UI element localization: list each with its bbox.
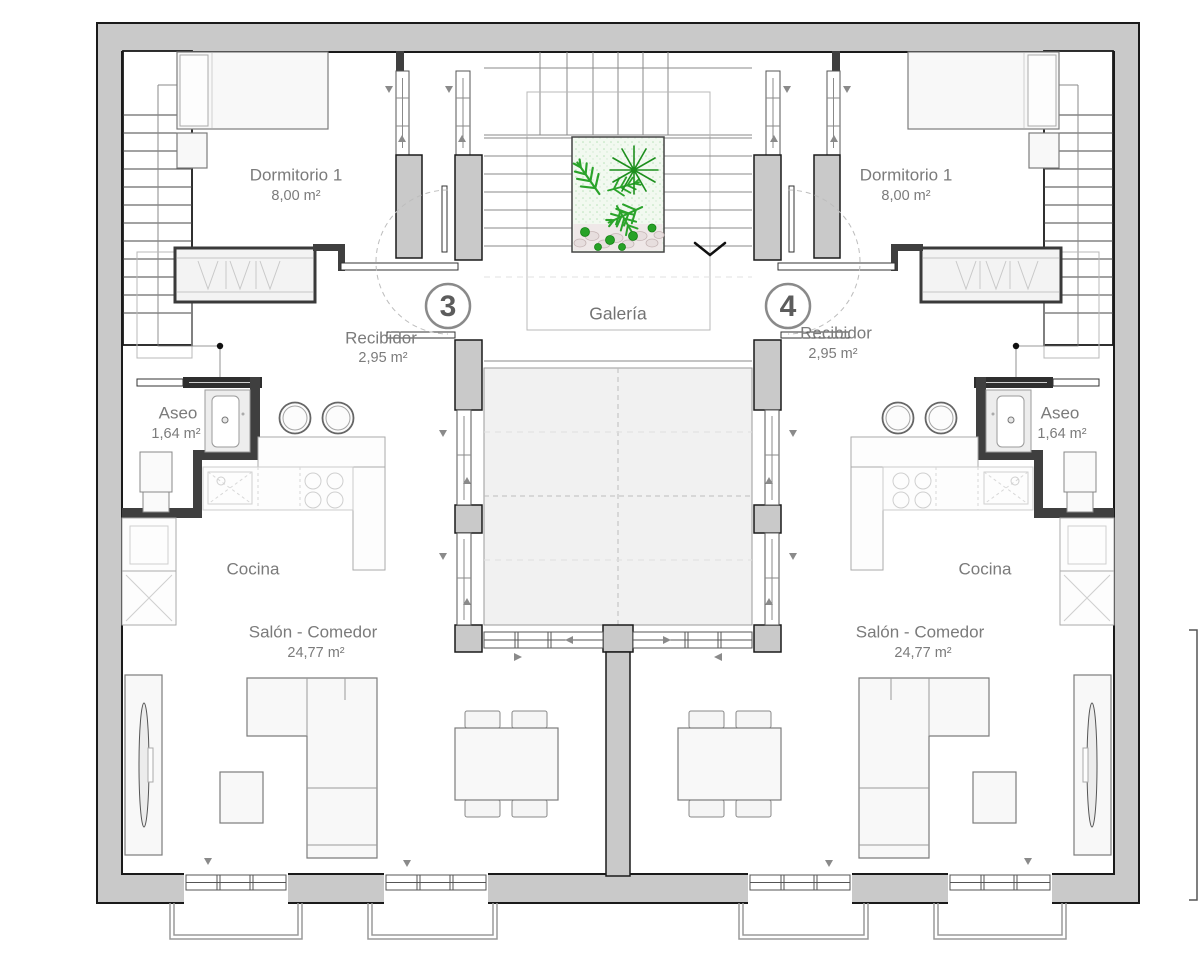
gallery-label: Galería <box>589 304 647 324</box>
apt3-bath-area: 1,64 m² <box>151 426 200 442</box>
apt3-bath-label: Aseo <box>159 403 198 422</box>
unit-3-badge: 3 <box>426 284 470 328</box>
apt4-kitchen-label: Cocina <box>959 559 1012 578</box>
nightstand <box>177 133 207 168</box>
bed <box>177 52 328 129</box>
apt3-living-area: 24,77 m² <box>287 645 344 661</box>
dining-chair <box>465 711 500 728</box>
apt4-bath-area: 1,64 m² <box>1037 426 1086 442</box>
apt3-living-label: Salón - Comedor <box>249 622 378 641</box>
apt4-bath-label: Aseo <box>1041 403 1080 422</box>
wardrobe <box>175 248 315 302</box>
kitchen-worktop-appliances <box>203 467 353 510</box>
kitchen-tall-units <box>122 518 176 625</box>
dining-chair <box>512 711 547 728</box>
unit-3-number: 3 <box>440 290 457 323</box>
dining-table <box>455 728 558 800</box>
apt3-bedroom-area: 8,00 m² <box>271 188 320 204</box>
apt4-hall-area: 2,95 m² <box>808 346 857 362</box>
courtyard <box>484 361 752 625</box>
apt4-bedroom-label: Dormitorio 1 <box>860 165 953 184</box>
apt3-kitchen-label: Cocina <box>227 559 280 578</box>
apt4-living-label: Salón - Comedor <box>856 622 985 641</box>
apt3-hall-area: 2,95 m² <box>358 350 407 366</box>
kitchen-counter-leg <box>353 467 385 570</box>
floor-plan-svg: Dormitorio 1 8,00 m² Recibidor 2,95 m² A… <box>0 0 1200 960</box>
ottoman <box>220 772 263 823</box>
bathroom-sink <box>205 390 250 452</box>
unit-4-number: 4 <box>780 290 797 323</box>
unit-4-badge: 4 <box>766 284 810 328</box>
party-wall <box>603 625 633 876</box>
junction-dot <box>217 343 223 349</box>
apt3-hall-label: Recibidor <box>345 328 417 347</box>
apt3-bedroom-label: Dormitorio 1 <box>250 165 343 184</box>
pillow <box>180 55 208 126</box>
pillar <box>396 155 422 258</box>
planter <box>568 137 664 252</box>
apt4-hall-label: Recibidor <box>800 323 872 342</box>
toilet <box>140 452 172 512</box>
tv-cabinet <box>125 675 162 855</box>
dining-chair <box>465 800 500 817</box>
dining-chair <box>512 800 547 817</box>
apt4-bedroom-area: 8,00 m² <box>881 188 930 204</box>
pillar <box>455 155 482 260</box>
kitchen-counter <box>258 437 385 467</box>
apt4-living-area: 24,77 m² <box>894 645 951 661</box>
